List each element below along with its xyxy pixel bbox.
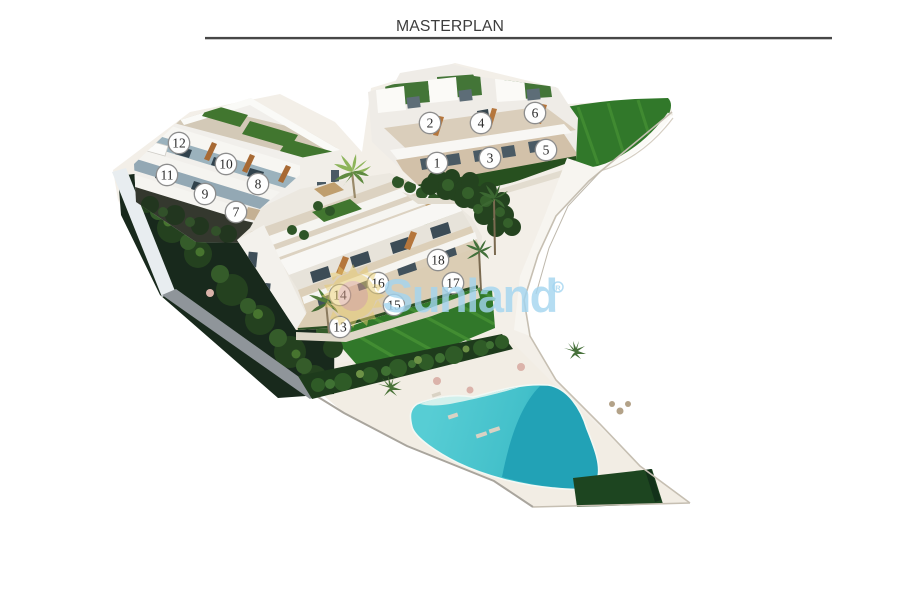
svg-text:11: 11: [161, 168, 174, 183]
svg-text:7: 7: [233, 205, 240, 220]
svg-text:9: 9: [202, 187, 209, 202]
svg-text:R: R: [555, 284, 561, 293]
svg-text:2: 2: [427, 116, 434, 131]
svg-text:6: 6: [532, 106, 539, 121]
svg-text:18: 18: [431, 253, 445, 268]
svg-text:5: 5: [543, 143, 550, 158]
svg-text:8: 8: [255, 177, 262, 192]
svg-text:4: 4: [478, 116, 485, 131]
svg-text:MASTERPLAN: MASTERPLAN: [396, 18, 504, 35]
svg-text:12: 12: [172, 136, 186, 151]
svg-text:Sunland: Sunland: [382, 269, 557, 322]
svg-text:3: 3: [487, 151, 494, 166]
svg-text:10: 10: [219, 157, 233, 172]
svg-text:1: 1: [434, 156, 441, 171]
